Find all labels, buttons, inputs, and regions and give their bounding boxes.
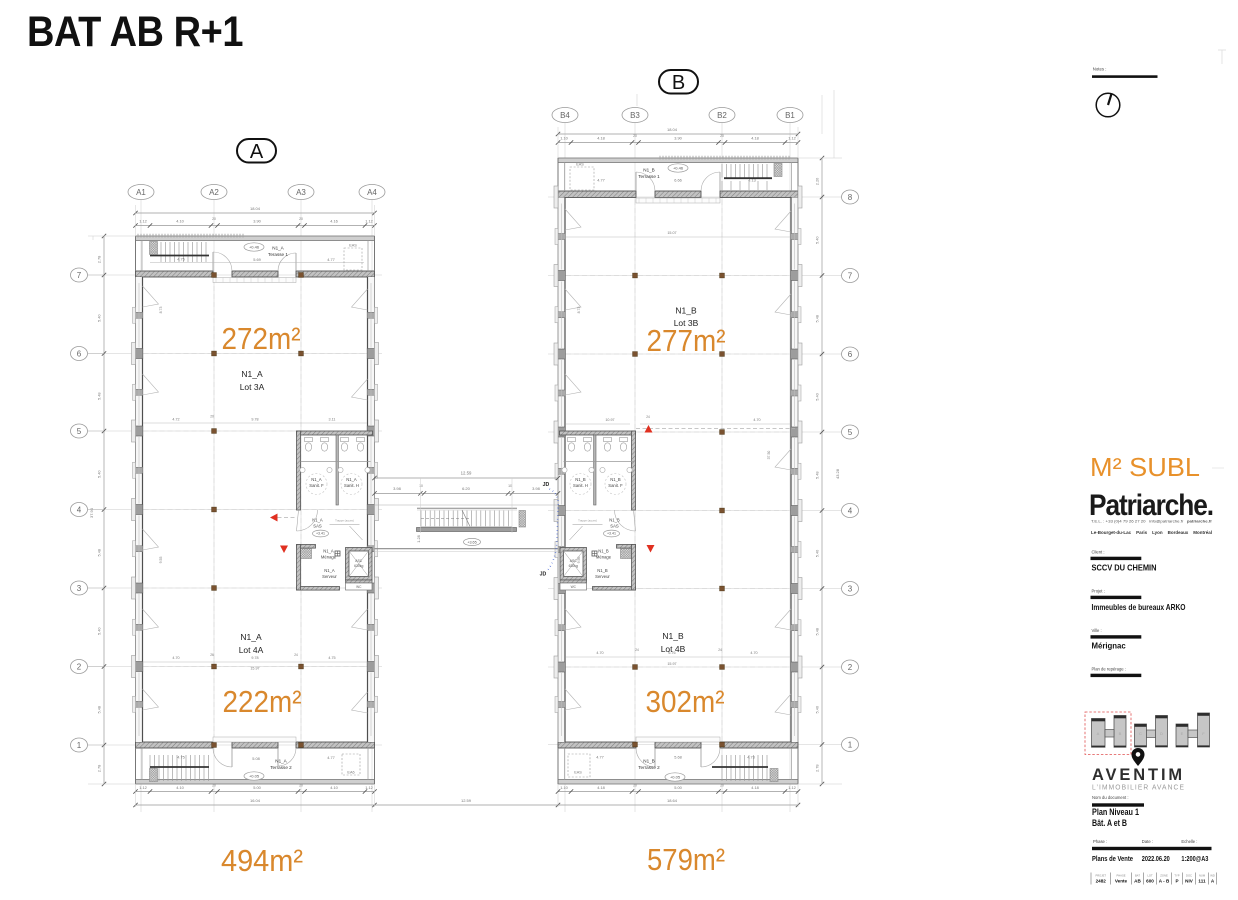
svg-text:L’IMMOBILIER AVANCE: L’IMMOBILIER AVANCE	[1092, 783, 1185, 792]
svg-text:4.75: 4.75	[177, 755, 185, 760]
svg-text:Plan Niveau 1: Plan Niveau 1	[1092, 807, 1139, 817]
svg-text:C: C	[1139, 731, 1142, 736]
svg-text:4.18: 4.18	[751, 785, 759, 790]
svg-text:6: 6	[848, 350, 853, 359]
svg-text:N1_A: N1_A	[240, 632, 262, 642]
svg-text:A: A	[250, 141, 264, 163]
svg-text:3.90: 3.90	[674, 136, 682, 141]
svg-text:5.08: 5.08	[252, 756, 260, 761]
svg-text:EAS: EAS	[576, 163, 584, 167]
svg-text:+0.05: +0.05	[249, 773, 260, 778]
svg-text:Patriarche.: Patriarche.	[1089, 489, 1213, 522]
svg-text:Ville :: Ville :	[1092, 628, 1102, 633]
svg-text:1: 1	[848, 741, 853, 750]
svg-text:5.48: 5.48	[815, 315, 820, 323]
svg-text:3.98: 3.98	[532, 486, 541, 491]
svg-text:9.55: 9.55	[159, 557, 163, 564]
svg-text:2.78: 2.78	[815, 764, 820, 772]
svg-text:20: 20	[210, 415, 214, 419]
svg-text:SAS: SAS	[610, 524, 619, 529]
svg-text:Vente: Vente	[1115, 879, 1128, 884]
svg-text:2.78: 2.78	[97, 256, 102, 264]
svg-text:2.78: 2.78	[97, 765, 102, 773]
svg-text:N1_B: N1_B	[675, 306, 697, 316]
svg-text:Echelle :: Echelle :	[1181, 839, 1197, 844]
svg-text:37.90: 37.90	[89, 507, 94, 518]
svg-text:20: 20	[212, 784, 216, 788]
svg-text:SCCV DU CHEMIN: SCCV DU CHEMIN	[1092, 564, 1157, 573]
svg-text:A - B: A - B	[1159, 879, 1170, 884]
svg-text:9.78: 9.78	[251, 656, 258, 660]
svg-text:3.98: 3.98	[393, 486, 402, 491]
svg-text:2: 2	[77, 663, 82, 672]
svg-text:+0.46: +0.46	[673, 165, 684, 170]
svg-text:7: 7	[848, 272, 853, 281]
svg-text:4.77: 4.77	[597, 178, 605, 183]
svg-text:N1_B: N1_B	[597, 568, 608, 573]
svg-text:20: 20	[299, 784, 303, 788]
svg-text:Terrasse 2: Terrasse 2	[270, 765, 292, 770]
svg-text:2022.06.20: 2022.06.20	[1142, 854, 1170, 863]
svg-text:5: 5	[848, 428, 853, 437]
svg-text:Terrasse 2: Terrasse 2	[638, 765, 660, 770]
svg-text:Sanit. H: Sanit. H	[573, 483, 588, 488]
svg-text:N1_A: N1_A	[241, 369, 263, 379]
svg-text:D: D	[1160, 731, 1163, 736]
svg-text:N1_A: N1_A	[323, 549, 334, 554]
svg-text:5.69: 5.69	[253, 257, 261, 262]
svg-text:Serveur: Serveur	[595, 574, 610, 579]
svg-text:4.72: 4.72	[172, 418, 179, 422]
svg-text:NUM: NUM	[1199, 874, 1206, 878]
svg-text:9.78: 9.78	[251, 418, 258, 422]
svg-text:E: E	[1181, 731, 1184, 736]
svg-text:1.12: 1.12	[365, 785, 373, 790]
svg-text:1.12: 1.12	[139, 785, 147, 790]
svg-text:272m²: 272m²	[222, 321, 301, 356]
svg-text:A4: A4	[367, 188, 377, 197]
svg-text:Le-Bourget-du-Lac Paris: Le-Bourget-du-Lac Paris Lyon Bordeaux Mo…	[1091, 530, 1212, 535]
svg-text:4.13: 4.13	[748, 178, 756, 183]
svg-text:2482: 2482	[1096, 879, 1107, 884]
svg-text:15.97: 15.97	[667, 662, 676, 666]
svg-text:4.70: 4.70	[596, 651, 603, 655]
svg-text:5.00: 5.00	[253, 785, 261, 790]
svg-text:Ménage: Ménage	[596, 555, 612, 560]
svg-text:5.40: 5.40	[97, 470, 102, 478]
svg-text:AB: AB	[1134, 879, 1141, 884]
svg-text:1:200@A3: 1:200@A3	[1181, 854, 1208, 863]
svg-text:WC: WC	[356, 585, 362, 589]
svg-text:4: 4	[848, 507, 853, 516]
svg-text:Terasse 1: Terasse 1	[268, 252, 288, 257]
svg-text:12.59: 12.59	[461, 471, 472, 476]
svg-text:N1_B: N1_B	[575, 477, 586, 482]
svg-text:5.40: 5.40	[815, 549, 820, 557]
svg-text:EA6: EA6	[347, 771, 354, 775]
svg-text:N1_B: N1_B	[662, 631, 684, 641]
svg-text:10: 10	[419, 484, 423, 488]
svg-text:Lot 4A: Lot 4A	[239, 645, 264, 655]
svg-text:12.59: 12.59	[461, 798, 472, 803]
svg-text:P: P	[1175, 879, 1178, 884]
svg-text:Client :: Client :	[1092, 550, 1105, 555]
svg-text:B: B	[1119, 731, 1122, 736]
svg-text:5: 5	[77, 427, 82, 436]
svg-text:4.77: 4.77	[596, 755, 604, 760]
svg-text:4.16: 4.16	[330, 219, 338, 224]
svg-text:4.18: 4.18	[597, 785, 605, 790]
svg-text:B2: B2	[717, 111, 727, 120]
svg-text:N1_B: N1_B	[598, 549, 609, 554]
svg-text:15.97: 15.97	[250, 667, 259, 671]
svg-text:5.48: 5.48	[97, 392, 102, 400]
svg-text:EAS: EAS	[349, 244, 357, 248]
svg-text:6.66: 6.66	[674, 178, 682, 183]
svg-text:BAT AB R+1: BAT AB R+1	[27, 8, 243, 56]
svg-text:4.75: 4.75	[328, 656, 335, 660]
svg-text:A3: A3	[296, 188, 306, 197]
svg-text:10: 10	[508, 484, 512, 488]
svg-text:Date :: Date :	[1142, 839, 1153, 844]
svg-text:5.48: 5.48	[815, 471, 820, 479]
svg-text:Sanit. F: Sanit. F	[309, 483, 324, 488]
svg-text:N1_B: N1_B	[610, 477, 621, 482]
svg-text:15.07: 15.07	[667, 231, 676, 235]
svg-text:N1_A: N1_A	[275, 759, 287, 764]
svg-text:B3: B3	[630, 111, 640, 120]
svg-text:3: 3	[848, 585, 853, 594]
svg-text:494m²: 494m²	[221, 843, 303, 878]
svg-text:20: 20	[720, 784, 724, 788]
svg-text:579m²: 579m²	[647, 842, 725, 877]
svg-text:N1_A: N1_A	[346, 477, 357, 482]
svg-text:A2: A2	[209, 188, 219, 197]
svg-text:2.20: 2.20	[815, 177, 820, 185]
svg-text:5.40: 5.40	[97, 314, 102, 322]
svg-text:+3.65: +3.65	[467, 540, 476, 544]
svg-text:AVENTIM: AVENTIM	[1092, 765, 1185, 784]
svg-text:DOC: DOC	[1186, 874, 1192, 878]
svg-text:Projet :: Projet :	[1092, 589, 1105, 594]
svg-text:6.20: 6.20	[462, 486, 471, 491]
svg-text:222m²: 222m²	[223, 684, 302, 719]
svg-text:3: 3	[77, 584, 82, 593]
svg-text:26: 26	[210, 653, 214, 657]
svg-text:WC: WC	[571, 585, 577, 589]
svg-text:N1_B: N1_B	[643, 759, 655, 764]
svg-text:ASC: ASC	[355, 559, 363, 563]
svg-text:1.28: 1.28	[416, 535, 421, 543]
svg-text:4.70: 4.70	[172, 656, 179, 660]
svg-text:Phase :: Phase :	[1093, 839, 1107, 844]
svg-text:+3.41: +3.41	[316, 532, 325, 536]
svg-text:277m²: 277m²	[647, 323, 726, 358]
svg-text:1.10: 1.10	[560, 785, 568, 790]
svg-text:Serveur: Serveur	[322, 574, 337, 579]
svg-text:Bât. A et B: Bât. A et B	[1092, 818, 1127, 828]
svg-text:Terrasse 1: Terrasse 1	[638, 174, 660, 179]
svg-text:18.04: 18.04	[250, 206, 261, 211]
svg-text:1.12: 1.12	[139, 219, 147, 224]
svg-text:Lot 3A: Lot 3A	[240, 382, 265, 392]
svg-text:5.00: 5.00	[674, 785, 682, 790]
svg-text:9.56: 9.56	[577, 557, 581, 564]
svg-text:PROJET: PROJET	[1095, 874, 1106, 878]
svg-text:4.10: 4.10	[176, 219, 184, 224]
svg-text:8: 8	[848, 193, 853, 202]
svg-text:10.97: 10.97	[605, 418, 614, 422]
svg-text:24: 24	[294, 653, 298, 657]
svg-text:24: 24	[718, 648, 722, 652]
svg-text:5.40: 5.40	[815, 236, 820, 244]
svg-text:20: 20	[633, 784, 637, 788]
svg-text:N1_A: N1_A	[324, 568, 335, 573]
svg-text:5.48: 5.48	[97, 549, 102, 557]
svg-text:Sanit. F: Sanit. F	[608, 483, 623, 488]
svg-text:JD: JD	[540, 572, 547, 578]
svg-text:+0.05: +0.05	[670, 774, 681, 779]
svg-text:Nom du document :: Nom du document :	[1092, 795, 1129, 800]
svg-text:N1_A: N1_A	[311, 477, 322, 482]
svg-text:4.10: 4.10	[330, 785, 338, 790]
svg-text:18.04: 18.04	[667, 127, 678, 132]
svg-text:4.73: 4.73	[747, 755, 755, 760]
svg-text:1: 1	[77, 741, 82, 750]
svg-text:N1_A: N1_A	[272, 246, 284, 251]
svg-text:M² SUBL: M² SUBL	[1090, 452, 1200, 482]
svg-text:4.77: 4.77	[327, 755, 335, 760]
svg-text:18.64: 18.64	[667, 798, 678, 803]
svg-text:1.12: 1.12	[788, 136, 796, 141]
svg-text:43.28: 43.28	[835, 468, 840, 479]
svg-text:4.70: 4.70	[753, 418, 760, 422]
svg-text:16.04: 16.04	[250, 798, 261, 803]
svg-text:Plan de repérage :: Plan de repérage :	[1092, 667, 1126, 672]
svg-text:37.50: 37.50	[767, 451, 771, 460]
svg-text:A: A	[1097, 731, 1100, 736]
svg-text:EAS: EAS	[574, 771, 582, 775]
svg-text:Trappe (acces): Trappe (acces)	[335, 519, 354, 523]
svg-text:3.11: 3.11	[329, 418, 336, 422]
svg-text:600: 600	[1146, 879, 1154, 884]
svg-text:4.10: 4.10	[176, 785, 184, 790]
svg-text:NIV: NIV	[1185, 879, 1194, 884]
svg-text:Ménage: Ménage	[321, 555, 337, 560]
svg-text:1.10: 1.10	[560, 136, 568, 141]
svg-text:TYP: TYP	[1174, 874, 1179, 878]
svg-text:A1: A1	[136, 188, 146, 197]
svg-text:Lot 4B: Lot 4B	[661, 644, 686, 654]
svg-text:+0.46: +0.46	[249, 244, 260, 249]
svg-text:+3.41: +3.41	[607, 532, 616, 536]
svg-text:24: 24	[646, 415, 650, 419]
svg-text:Plans de Vente: Plans de Vente	[1092, 854, 1133, 863]
svg-text:4.77: 4.77	[327, 257, 335, 262]
svg-text:630kg: 630kg	[569, 564, 578, 568]
svg-text:5.40: 5.40	[815, 392, 820, 400]
svg-text:6: 6	[77, 350, 82, 359]
svg-text:B4: B4	[560, 111, 570, 120]
svg-text:LOT: LOT	[1147, 874, 1153, 878]
svg-text:24: 24	[635, 648, 639, 652]
svg-text:4: 4	[77, 506, 82, 515]
svg-text:SAS: SAS	[313, 524, 322, 529]
svg-text:N1_B: N1_B	[643, 168, 655, 173]
svg-text:5.40: 5.40	[815, 705, 820, 713]
svg-text:B1: B1	[785, 111, 795, 120]
svg-text:JD: JD	[543, 482, 550, 488]
svg-text:5.48: 5.48	[97, 706, 102, 714]
svg-text:8.73: 8.73	[159, 307, 163, 314]
svg-text:4.18: 4.18	[751, 136, 759, 141]
svg-text:302m²: 302m²	[646, 684, 725, 719]
svg-text:T.E.L. : +33 (0)4 79 26 27 20: T.E.L. : +33 (0)4 79 26 27 20 info@patri…	[1091, 520, 1213, 524]
svg-text:2: 2	[848, 663, 853, 672]
svg-text:1.12: 1.12	[365, 219, 373, 224]
svg-text:Mérignac: Mérignac	[1092, 642, 1127, 651]
svg-text:Notes :: Notes :	[1093, 67, 1107, 72]
svg-text:BAT: BAT	[1135, 874, 1140, 878]
svg-text:5.68: 5.68	[674, 755, 682, 760]
svg-text:4.75: 4.75	[177, 257, 185, 262]
svg-text:5.48: 5.48	[815, 628, 820, 636]
svg-text:4.18: 4.18	[597, 136, 605, 141]
svg-text:4.70: 4.70	[750, 651, 757, 655]
svg-text:20: 20	[212, 217, 216, 221]
svg-text:ZONE: ZONE	[1160, 874, 1168, 878]
svg-text:PHASE: PHASE	[1116, 874, 1125, 878]
svg-text:3.90: 3.90	[253, 219, 261, 224]
svg-text:20: 20	[299, 217, 303, 221]
svg-text:5.40: 5.40	[97, 627, 102, 635]
svg-text:8.73: 8.73	[577, 307, 581, 314]
svg-text:Sanit. H: Sanit. H	[344, 483, 359, 488]
svg-text:Trappe (acces): Trappe (acces)	[578, 519, 597, 523]
svg-text:111: 111	[1198, 879, 1206, 884]
svg-text:20: 20	[720, 134, 724, 138]
svg-text:7: 7	[77, 271, 82, 280]
svg-text:B: B	[672, 72, 685, 94]
svg-text:20: 20	[633, 134, 637, 138]
svg-text:Immeubles de bureaux ARKO: Immeubles de bureaux ARKO	[1092, 603, 1187, 612]
svg-text:IND: IND	[1210, 874, 1215, 878]
svg-text:1.12: 1.12	[788, 785, 796, 790]
svg-text:630kg: 630kg	[354, 564, 363, 568]
